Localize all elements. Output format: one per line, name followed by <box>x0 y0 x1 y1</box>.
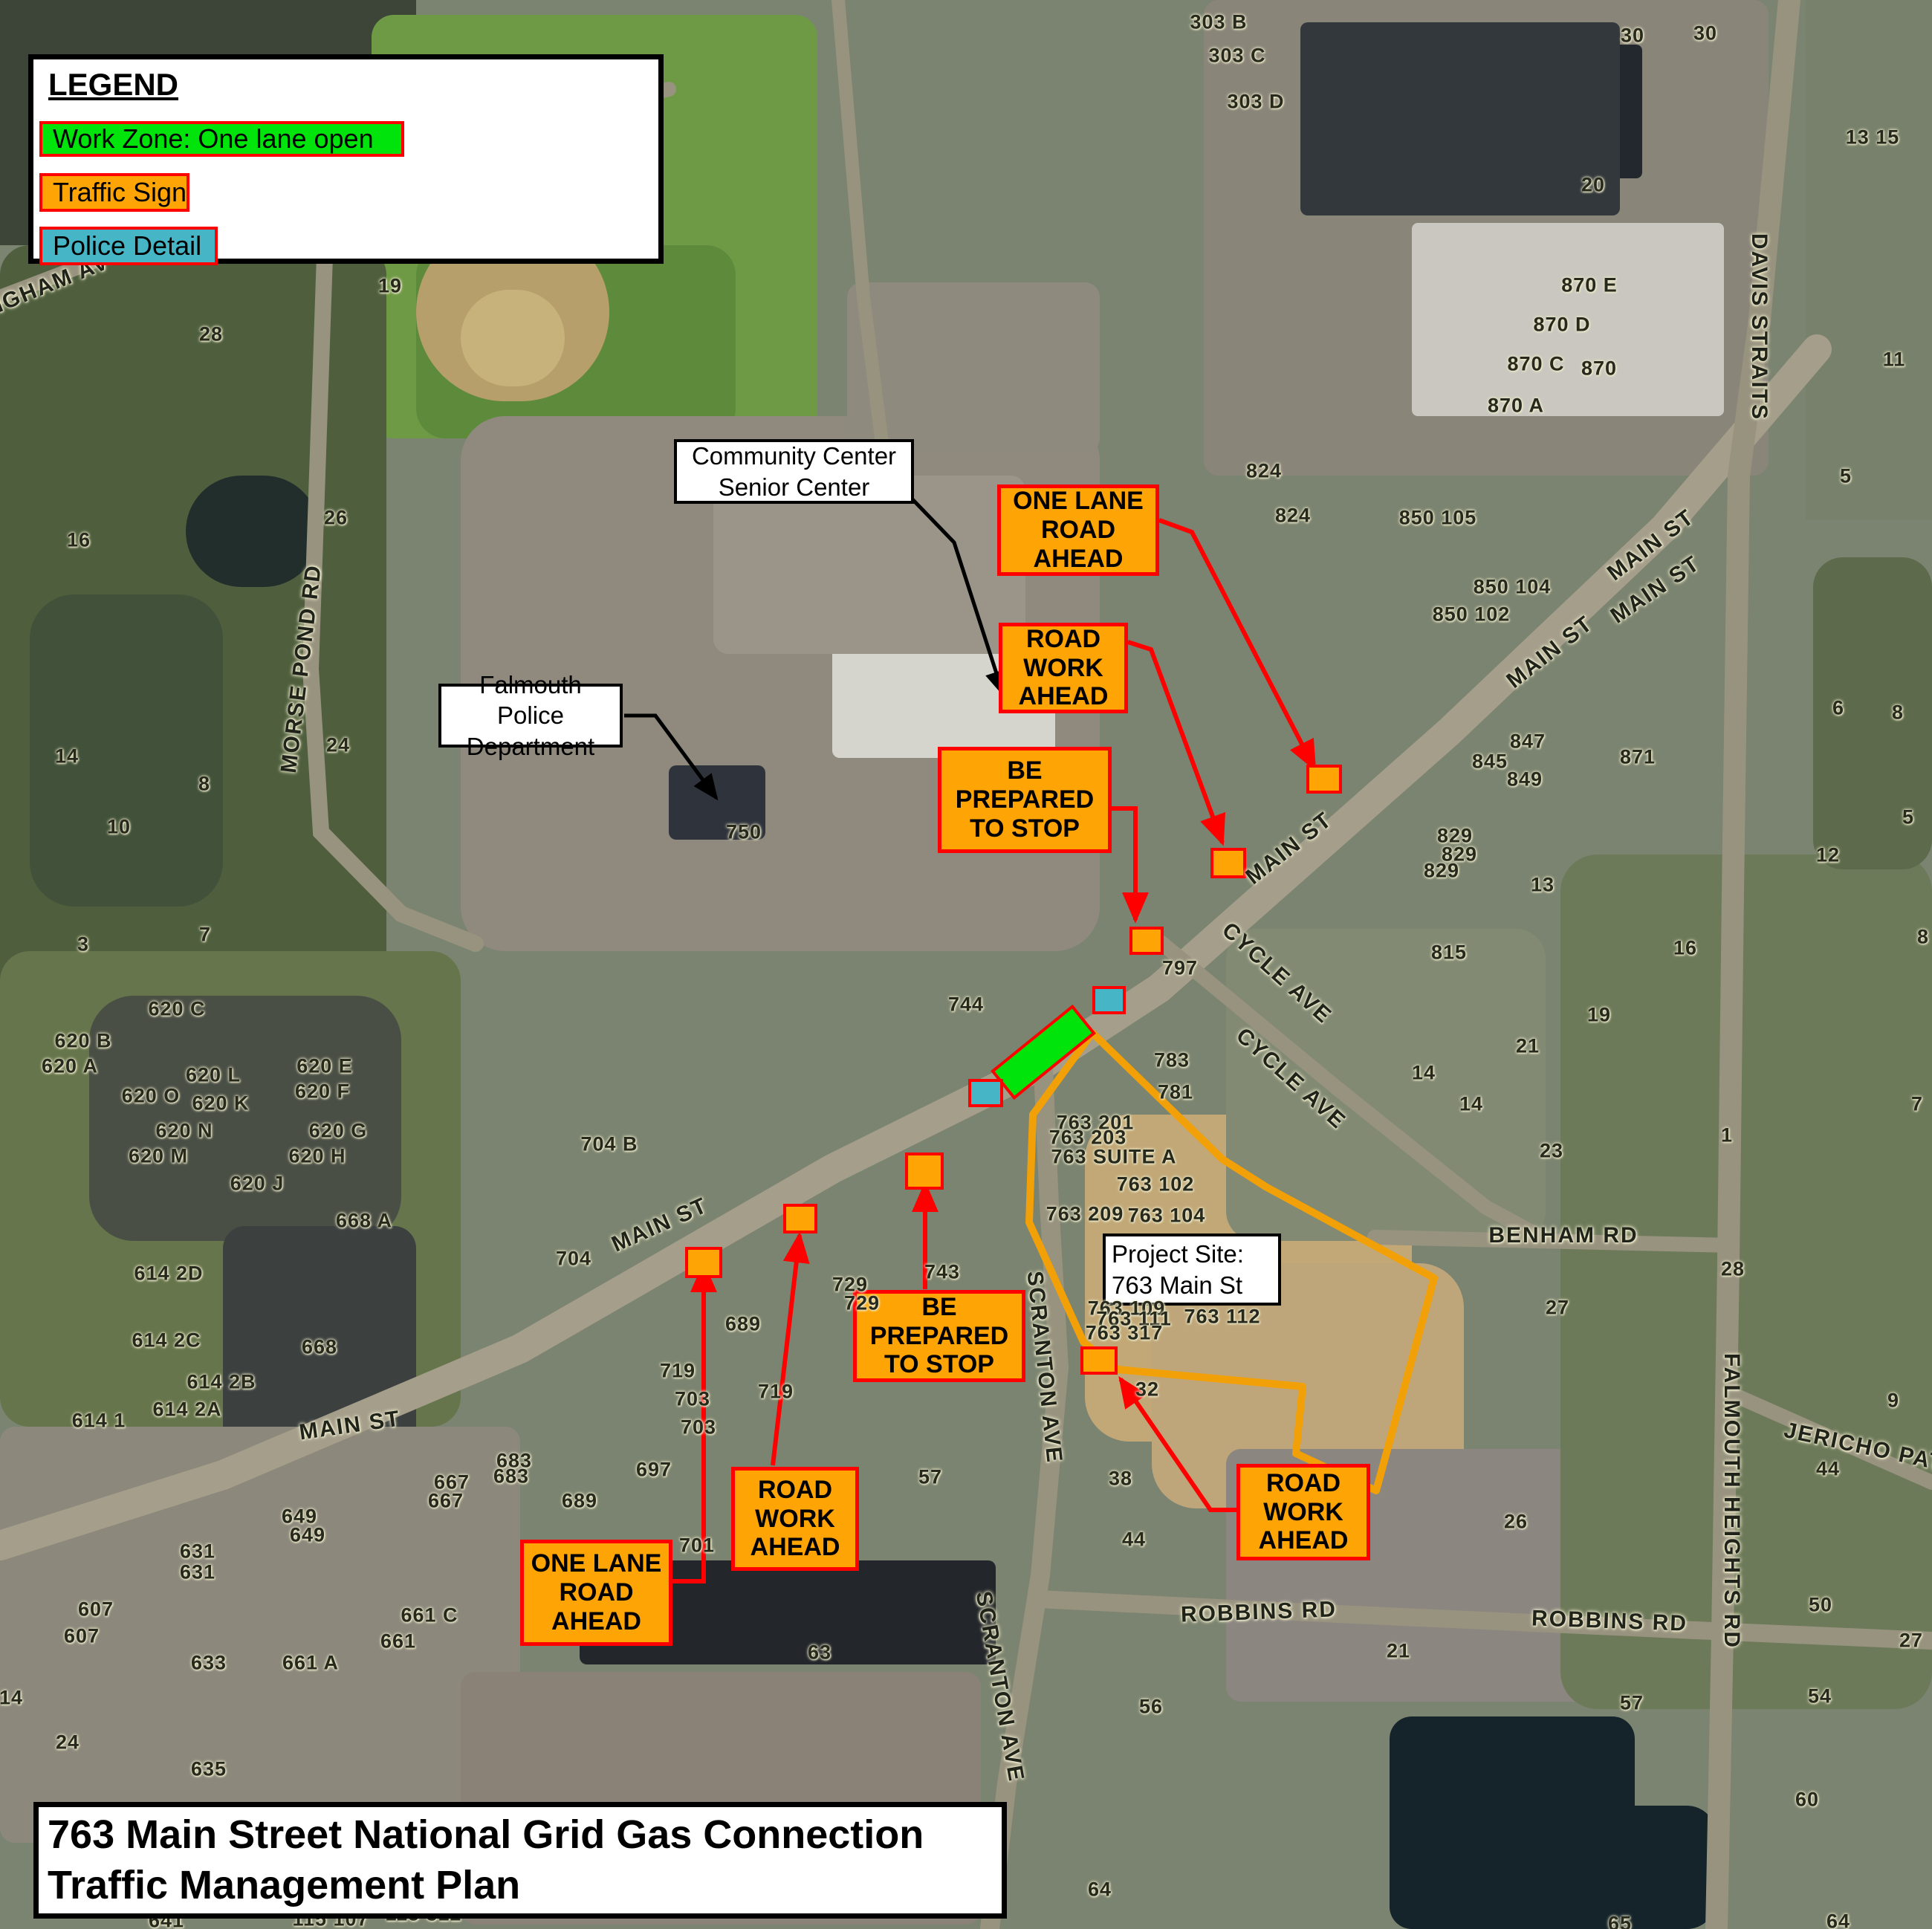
parcel-label: 5 <box>1840 465 1852 488</box>
street-label: FALMOUTH HEIGHTS RD <box>1719 1353 1744 1649</box>
sign-label-line: WORK <box>1023 654 1103 683</box>
parcel-label: 870 <box>1581 357 1617 380</box>
street-label: CYCLE AVE <box>1231 1023 1350 1135</box>
parcel-label: 661 <box>380 1630 416 1653</box>
parcel-label: 3 <box>77 933 89 956</box>
parcel-label: 701 <box>679 1534 715 1557</box>
parcel-label: 57 <box>1620 1692 1644 1715</box>
community-center-callout: Community CenterSenior Center <box>674 439 914 504</box>
parcel-label: 8 <box>1917 926 1929 949</box>
parcel-label: 6 <box>1832 697 1844 720</box>
parcel-label: 303 D <box>1227 91 1284 114</box>
parcel-label: 620 M <box>129 1145 188 1168</box>
parcel-label: 683 <box>493 1465 529 1488</box>
parcel-label: 668 <box>302 1336 337 1359</box>
street-label: SCRANTON AVE <box>1021 1270 1066 1465</box>
parcel-label: 614 2C <box>132 1329 201 1352</box>
parcel-label: 744 <box>948 993 984 1017</box>
street-label: DAVIS STRAITS <box>1746 233 1771 421</box>
parcel-label: 64 <box>1826 1910 1850 1929</box>
traffic-sign-square <box>1129 927 1164 955</box>
parcel-label: 631 <box>180 1561 215 1584</box>
parcel-label: 871 <box>1620 746 1656 769</box>
parcel-label: 28 <box>1721 1258 1745 1281</box>
parcel-label: 7 <box>1911 1093 1923 1116</box>
parcel-label: 19 <box>378 275 402 298</box>
street-label: MAIN ST <box>1241 807 1337 889</box>
street-label: ROBBINS RD <box>1180 1597 1337 1627</box>
legend: LEGEND Work Zone: One lane openTraffic S… <box>28 54 664 264</box>
parcel-label: 21 <box>1516 1035 1540 1058</box>
callout-line: Project Site: <box>1112 1239 1272 1269</box>
sign-label-road-work-ahead-se: ROADWORKAHEAD <box>1236 1464 1370 1560</box>
parcel-label: 620 O <box>122 1085 181 1108</box>
sign-label-line: PREPARED <box>956 785 1094 814</box>
parcel-label: 16 <box>67 529 91 552</box>
parcel-label: 56 <box>1139 1696 1163 1719</box>
parcel-label: 620 N <box>155 1120 213 1143</box>
parcel-label: 781 <box>1158 1081 1193 1104</box>
parcel-label: 28 <box>199 323 223 346</box>
work-zone <box>991 1005 1096 1100</box>
parcel-label: 1 <box>1721 1124 1733 1147</box>
sign-label-line: ONE LANE <box>1013 487 1144 516</box>
parcel-label: 64 <box>1088 1878 1112 1902</box>
parcel-label: 19 <box>1587 1004 1611 1027</box>
plan-title-line1: 763 Main Street National Grid Gas Connec… <box>48 1810 1002 1861</box>
police-detail-square <box>968 1079 1003 1107</box>
street-label: SCRANTON AVE <box>970 1589 1029 1784</box>
parcel-label: 50 <box>1809 1594 1832 1617</box>
parcel-label: 763 209 <box>1046 1203 1124 1226</box>
parcel-label: 667 <box>428 1490 464 1513</box>
parcel-label: 719 <box>758 1381 794 1404</box>
parcel-label: 631 <box>180 1540 215 1563</box>
traffic-sign-square <box>905 1152 944 1190</box>
parcel-label: 750 <box>726 821 762 844</box>
sign-label-road-work-ahead-sw: ROADWORKAHEAD <box>731 1467 859 1571</box>
parcel-label: 614 2D <box>134 1262 203 1286</box>
parcel-label: 870 C <box>1507 353 1564 376</box>
legend-item-0: Work Zone: One lane open <box>39 121 404 157</box>
project-site-callout: Project Site:763 Main St <box>1103 1233 1281 1306</box>
parcel-label: 13 15 <box>1846 126 1900 149</box>
parcel-label: 30 <box>1621 25 1644 48</box>
traffic-sign-square <box>783 1204 817 1233</box>
parcel-label: 8 <box>198 773 210 796</box>
parcel-label: 845 <box>1472 750 1508 774</box>
parcel-label: 24 <box>326 734 350 757</box>
parcel-label: 763 104 <box>1128 1205 1206 1228</box>
map-annotations: ONE LANEROADAHEADROADWORKAHEADBEPREPARED… <box>0 0 1932 1929</box>
parcel-label: 870 D <box>1533 314 1590 337</box>
legend-item-2: Police Detail <box>39 227 218 265</box>
parcel-label: 763 112 <box>1184 1306 1260 1329</box>
sign-label-line: BE <box>921 1293 956 1322</box>
parcel-label: 60 <box>1795 1789 1819 1812</box>
parcel-label: 614 1 <box>72 1410 126 1433</box>
parcel-label: 14 <box>55 745 79 768</box>
parcel-label: 850 105 <box>1399 507 1477 530</box>
street-label: BENHAM RD <box>1488 1223 1638 1248</box>
parcel-label: 12 <box>1816 844 1840 867</box>
parcel-label: 635 <box>191 1758 227 1781</box>
police-detail-square <box>1092 986 1126 1014</box>
sign-label-line: ONE LANE <box>531 1549 662 1578</box>
parcel-label: 703 <box>675 1388 710 1411</box>
parcel-label: 607 <box>64 1625 100 1648</box>
street-label: CYCLE AVE <box>1216 918 1336 1029</box>
traffic-sign-square <box>1306 765 1342 794</box>
parcel-label: 689 <box>562 1490 597 1513</box>
parcel-label: 30 <box>1693 22 1717 45</box>
parcel-label: 54 <box>1808 1685 1832 1708</box>
sign-label-line: PREPARED <box>870 1322 1008 1351</box>
parcel-label: 763 SUITE A <box>1051 1146 1176 1169</box>
sign-label-line: AHEAD <box>551 1607 641 1636</box>
parcel-label: 763 317 <box>1086 1322 1164 1345</box>
sign-label-line: ROAD <box>1266 1469 1341 1498</box>
sign-label-line: WORK <box>1263 1498 1343 1527</box>
street-label: MORSE POND RD <box>276 563 327 775</box>
parcel-label: 13 <box>1531 874 1555 897</box>
parcel-label: 697 <box>636 1459 672 1482</box>
parcel-label: 661 A <box>282 1652 339 1675</box>
parcel-label: 815 <box>1431 941 1467 964</box>
parcel-label: 7 <box>199 924 211 947</box>
parcel-label: 729 <box>844 1292 880 1315</box>
parcel-label: 829 <box>1424 860 1459 883</box>
sign-label-line: WORK <box>755 1505 835 1534</box>
sign-label-one-lane-road-ahead-ne: ONE LANEROADAHEAD <box>997 484 1159 576</box>
legend-item-1: Traffic Sign <box>39 173 189 212</box>
parcel-label: 63 <box>808 1641 832 1664</box>
parcel-label: 703 <box>681 1416 716 1439</box>
parcel-label: 620 J <box>230 1173 285 1196</box>
parcel-label: 661 C <box>401 1604 458 1627</box>
plan-title: 763 Main Street National Grid Gas Connec… <box>33 1802 1007 1919</box>
parcel-label: 14 <box>1459 1093 1483 1116</box>
parcel-label: 20 <box>1581 174 1605 197</box>
police-dept-callout: Falmouth PoliceDepartment <box>438 684 623 748</box>
parcel-label: 21 <box>1387 1640 1410 1663</box>
traffic-sign-square <box>685 1247 722 1278</box>
traffic-sign-square <box>1210 848 1246 878</box>
parcel-label: 65 <box>1608 1913 1632 1929</box>
parcel-label: 649 <box>290 1524 325 1547</box>
parcel-label: 620 C <box>148 998 205 1021</box>
legend-heading: LEGEND <box>48 67 658 103</box>
parcel-label: 14 <box>1412 1062 1436 1085</box>
sign-label-line: AHEAD <box>751 1533 840 1562</box>
parcel-label: 303 B <box>1190 11 1247 34</box>
parcel-label: 783 <box>1154 1049 1190 1072</box>
street-label: ROBBINS RD <box>1531 1606 1688 1636</box>
sign-label-line: ROAD <box>1041 516 1115 545</box>
sign-label-be-prepared-to-stop-ne: BEPREPAREDTO STOP <box>938 747 1112 853</box>
parcel-label: 26 <box>1504 1511 1528 1534</box>
parcel-label: 704 <box>556 1248 591 1271</box>
parcel-label: 23 <box>1540 1140 1563 1163</box>
parcel-label: 11 <box>1883 348 1906 372</box>
parcel-label: 303 C <box>1208 45 1265 68</box>
traffic-plan-map: ONE LANEROADAHEADROADWORKAHEADBEPREPARED… <box>0 0 1932 1929</box>
parcel-label: 620 L <box>186 1064 241 1087</box>
parcel-label: 763 102 <box>1117 1173 1195 1196</box>
parcel-label: 850 102 <box>1433 603 1511 626</box>
sign-label-line: AHEAD <box>1034 545 1124 574</box>
parcel-label: 850 104 <box>1474 576 1552 599</box>
street-label: JERICHO PATH <box>1782 1418 1932 1480</box>
sign-label-line: ROAD <box>1026 625 1100 654</box>
parcel-label: 44 <box>1816 1458 1840 1481</box>
sign-label-line: TO STOP <box>884 1350 994 1379</box>
parcel-label: 847 <box>1510 730 1546 753</box>
parcel-label: 824 <box>1275 505 1311 528</box>
sign-label-line: ROAD <box>758 1476 832 1505</box>
parcel-label: 620 B <box>54 1030 111 1053</box>
parcel-label: 10 <box>107 816 131 839</box>
parcel-label: 620 E <box>296 1055 353 1078</box>
parcel-label: 27 <box>1546 1297 1569 1320</box>
sign-label-one-lane-road-ahead-sw: ONE LANEROADAHEAD <box>520 1540 672 1646</box>
parcel-label: 5 <box>1902 806 1914 829</box>
sign-label-line: AHEAD <box>1019 682 1109 711</box>
plan-title-line2: Traffic Management Plan <box>48 1861 1002 1911</box>
parcel-label: 8 <box>1892 701 1904 724</box>
street-label: MAIN ST <box>298 1407 403 1446</box>
parcel-label: 9 <box>1887 1390 1899 1413</box>
sign-label-line: ROAD <box>559 1578 633 1607</box>
parcel-label: 16 <box>1673 937 1697 960</box>
parcel-label: 704 B <box>580 1133 638 1156</box>
parcel-label: 26 <box>324 507 348 530</box>
callout-line: Department <box>447 731 614 762</box>
parcel-label: 614 2B <box>187 1371 256 1394</box>
parcel-label: 38 <box>1109 1468 1132 1491</box>
callout-line: 763 Main St <box>1112 1270 1272 1300</box>
parcel-label: 14 <box>0 1687 23 1710</box>
parcel-label: 607 <box>78 1598 114 1621</box>
parcel-label: 620 K <box>192 1092 249 1115</box>
sign-label-line: TO STOP <box>970 814 1080 843</box>
parcel-label: 689 <box>725 1313 761 1336</box>
parcel-label: 743 <box>924 1261 960 1284</box>
parcel-label: 24 <box>56 1731 80 1754</box>
parcel-label: 620 A <box>42 1055 98 1078</box>
sign-label-road-work-ahead-ne: ROADWORKAHEAD <box>999 623 1128 713</box>
parcel-label: 870 E <box>1561 274 1618 297</box>
callout-line: Falmouth Police <box>447 670 614 731</box>
parcel-label: 44 <box>1122 1528 1146 1552</box>
sign-label-line: AHEAD <box>1259 1526 1349 1555</box>
parcel-label: 57 <box>918 1466 942 1489</box>
parcel-label: 620 F <box>295 1080 350 1103</box>
parcel-label: 870 A <box>1488 395 1544 418</box>
parcel-label: 668 A <box>336 1210 392 1233</box>
parcel-label: 849 <box>1507 768 1543 791</box>
sign-label-line: BE <box>1007 756 1042 785</box>
parcel-label: 797 <box>1162 957 1198 980</box>
callout-line: Community Center <box>683 441 905 471</box>
street-label: MAIN ST <box>1502 611 1598 693</box>
parcel-label: 633 <box>191 1652 227 1675</box>
parcel-label: 824 <box>1246 460 1282 483</box>
parcel-label: 620 G <box>309 1120 368 1143</box>
parcel-label: 32 <box>1135 1378 1159 1401</box>
parcel-label: 27 <box>1899 1630 1923 1653</box>
callout-line: Senior Center <box>683 472 905 502</box>
parcel-label: 620 H <box>288 1145 346 1168</box>
traffic-sign-square <box>1080 1346 1118 1375</box>
parcel-label: 719 <box>660 1360 696 1383</box>
parcel-label: 614 2A <box>152 1398 221 1421</box>
